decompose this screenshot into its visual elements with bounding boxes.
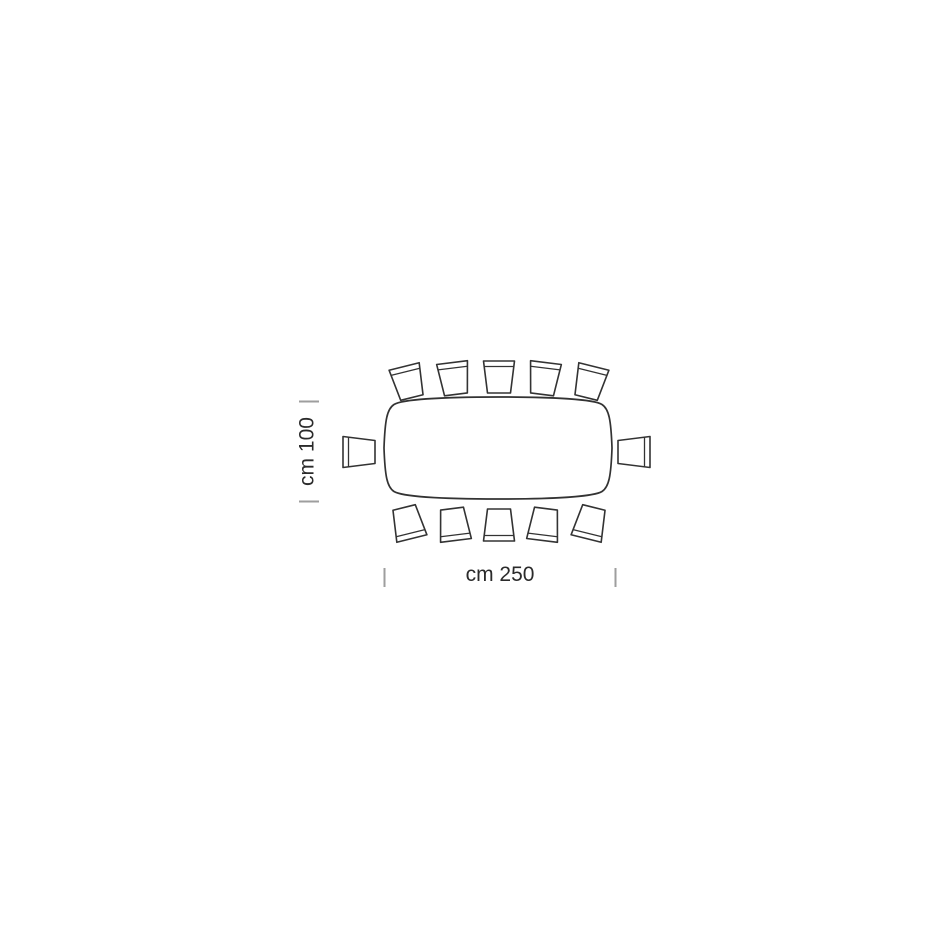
table-top xyxy=(384,397,612,499)
dimension-diagram: cm 100 cm 250 xyxy=(0,0,950,950)
chair-top-2 xyxy=(437,361,472,397)
chair-backrest-line xyxy=(531,366,560,370)
depth-dimension-label: cm 100 xyxy=(294,352,321,552)
chair-backrest-line xyxy=(438,366,467,370)
chair-bottom-4 xyxy=(527,507,562,543)
chair-backrest-line xyxy=(528,533,557,537)
chair-bottom-1 xyxy=(389,504,427,543)
chair-bottom-3 xyxy=(484,509,515,541)
width-dimension-label: cm 250 xyxy=(400,561,600,588)
chair-top-5 xyxy=(571,363,609,402)
chair-top-3 xyxy=(484,361,515,393)
table-and-chairs-drawing xyxy=(0,0,950,950)
chair-bottom-2 xyxy=(437,507,472,543)
chair-bottom-5 xyxy=(571,504,609,543)
chair-right xyxy=(618,437,650,468)
chair-backrest-line xyxy=(441,533,470,537)
chair-top-1 xyxy=(389,363,427,402)
chair-top-4 xyxy=(527,361,562,397)
chair-left xyxy=(343,437,375,468)
